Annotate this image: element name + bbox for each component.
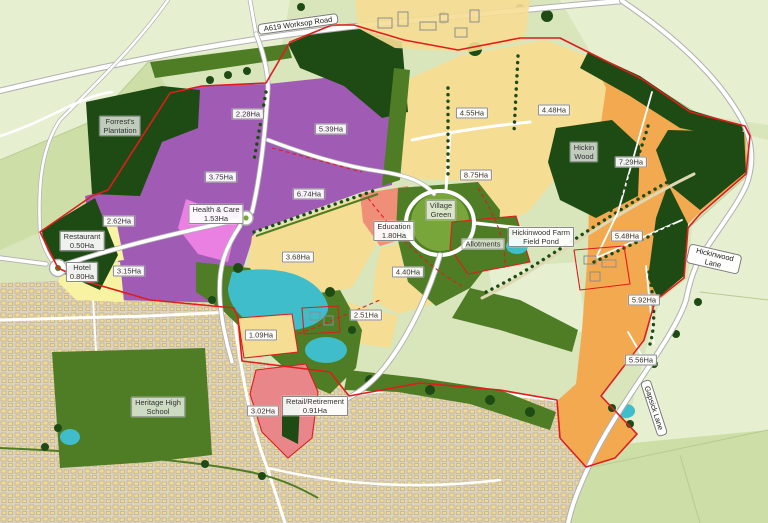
field-pond: [506, 238, 528, 254]
school-field: [52, 348, 212, 468]
masterplan-map: A619 Worksop RoadForrest's Plantation2.2…: [0, 0, 768, 523]
map-canvas: [0, 0, 768, 523]
